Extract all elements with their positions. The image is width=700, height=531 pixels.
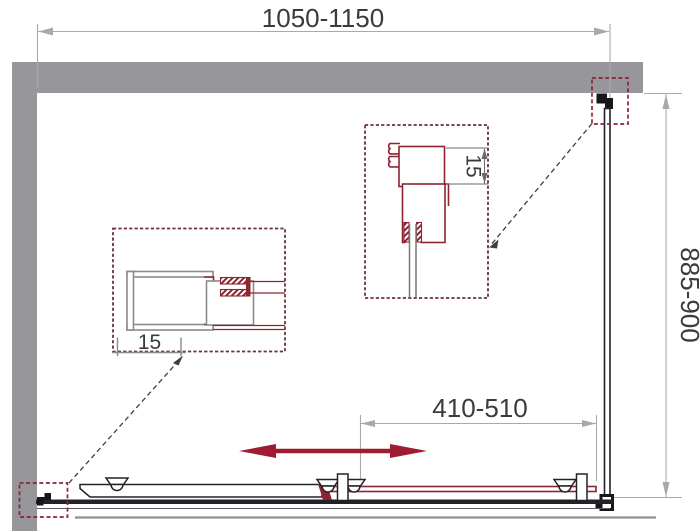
width-dimension-label: 1050-1150 — [262, 3, 384, 33]
brush-seal-bottom — [221, 290, 247, 297]
depth-dimension-label: 885-900 — [675, 247, 700, 342]
dimension-door-travel: 410-510 — [361, 393, 597, 488]
corner-bracket-foot — [596, 504, 602, 508]
arrow-head-right-icon — [390, 444, 427, 458]
fixed-glass-panel — [596, 94, 614, 510]
fixed-panel-rail — [322, 487, 596, 492]
c-profile-spine — [127, 272, 134, 331]
dimension-depth: 885-900 — [613, 94, 700, 498]
slide-direction-arrow — [239, 444, 427, 458]
glass-panel-edge — [605, 109, 611, 497]
door-travel-label: 410-510 — [432, 393, 527, 423]
shower-enclosure-diagram: 1050-1150 885-900 410-510 — [0, 0, 700, 531]
seal-post — [246, 277, 251, 297]
detail-left-profile-section: 15 — [112, 229, 285, 357]
wall-left — [12, 62, 37, 531]
right-detail-offset-label: 15 — [462, 154, 485, 177]
wall-top — [12, 62, 643, 93]
arrow-right-icon — [594, 28, 609, 36]
arrow-left-icon — [361, 420, 375, 427]
arrow-up-icon — [663, 94, 670, 109]
stopper — [577, 474, 588, 501]
brush-seal-right — [417, 223, 422, 243]
sliding-door-track — [36, 474, 656, 518]
arrow-left-icon — [38, 28, 53, 36]
arrow-right-icon — [582, 420, 596, 427]
c-profile-top-arm — [127, 272, 213, 278]
detail-right-profile-section: 15 — [365, 125, 489, 298]
left-detail-offset-label: 15 — [138, 331, 161, 354]
leader-left-arrow-icon — [173, 356, 183, 366]
leader-left — [69, 357, 182, 483]
wall-profile-outer — [399, 147, 445, 187]
brush-seal-left — [404, 223, 409, 243]
leader-right — [490, 124, 592, 247]
arrow-down-icon — [663, 482, 670, 497]
bottom-rail-thick — [36, 500, 613, 505]
walls — [12, 62, 643, 531]
stopper — [338, 474, 349, 501]
c-profile-bottom-arm — [127, 325, 213, 331]
brush-seal-top — [221, 278, 247, 285]
arrow-head-left-icon — [239, 444, 276, 458]
